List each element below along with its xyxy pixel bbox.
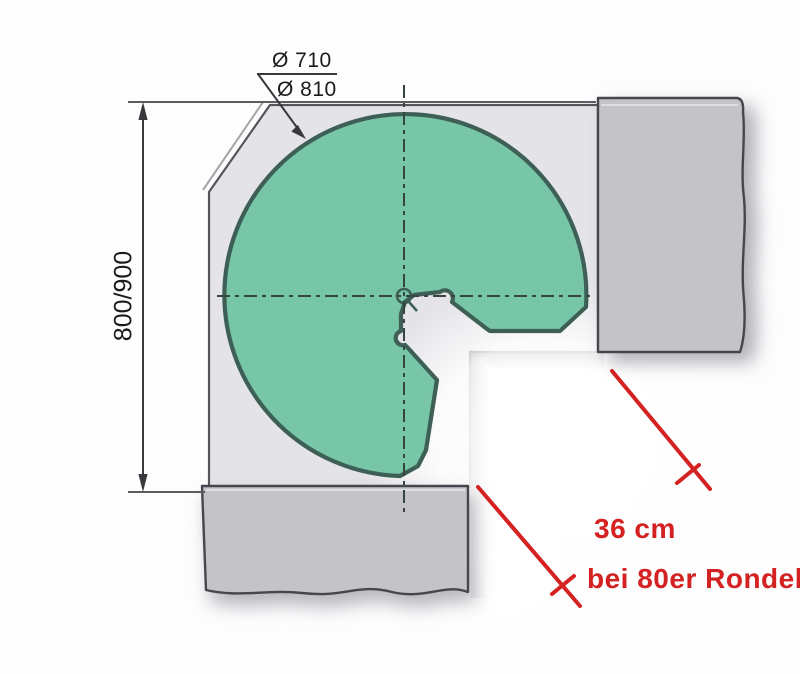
adjacent-cabinet-right [598, 98, 745, 352]
adjacent-cabinet-bottom [202, 486, 468, 594]
dimension-arrow-top [138, 102, 147, 120]
dimension-label-width: 800/900 [110, 251, 139, 341]
clearance-label: 36 cm [594, 513, 676, 545]
corner-cabinet-diagram: Ø 710 Ø 810 800/900 36 cm bei 80er Ronde… [0, 0, 800, 674]
diameter-label-inner: Ø 710 [272, 49, 332, 72]
note-label: bei 80er Rondell [587, 563, 800, 595]
dimension-arrow-bottom [138, 474, 147, 492]
diameter-label-outer: Ø 810 [277, 78, 337, 101]
